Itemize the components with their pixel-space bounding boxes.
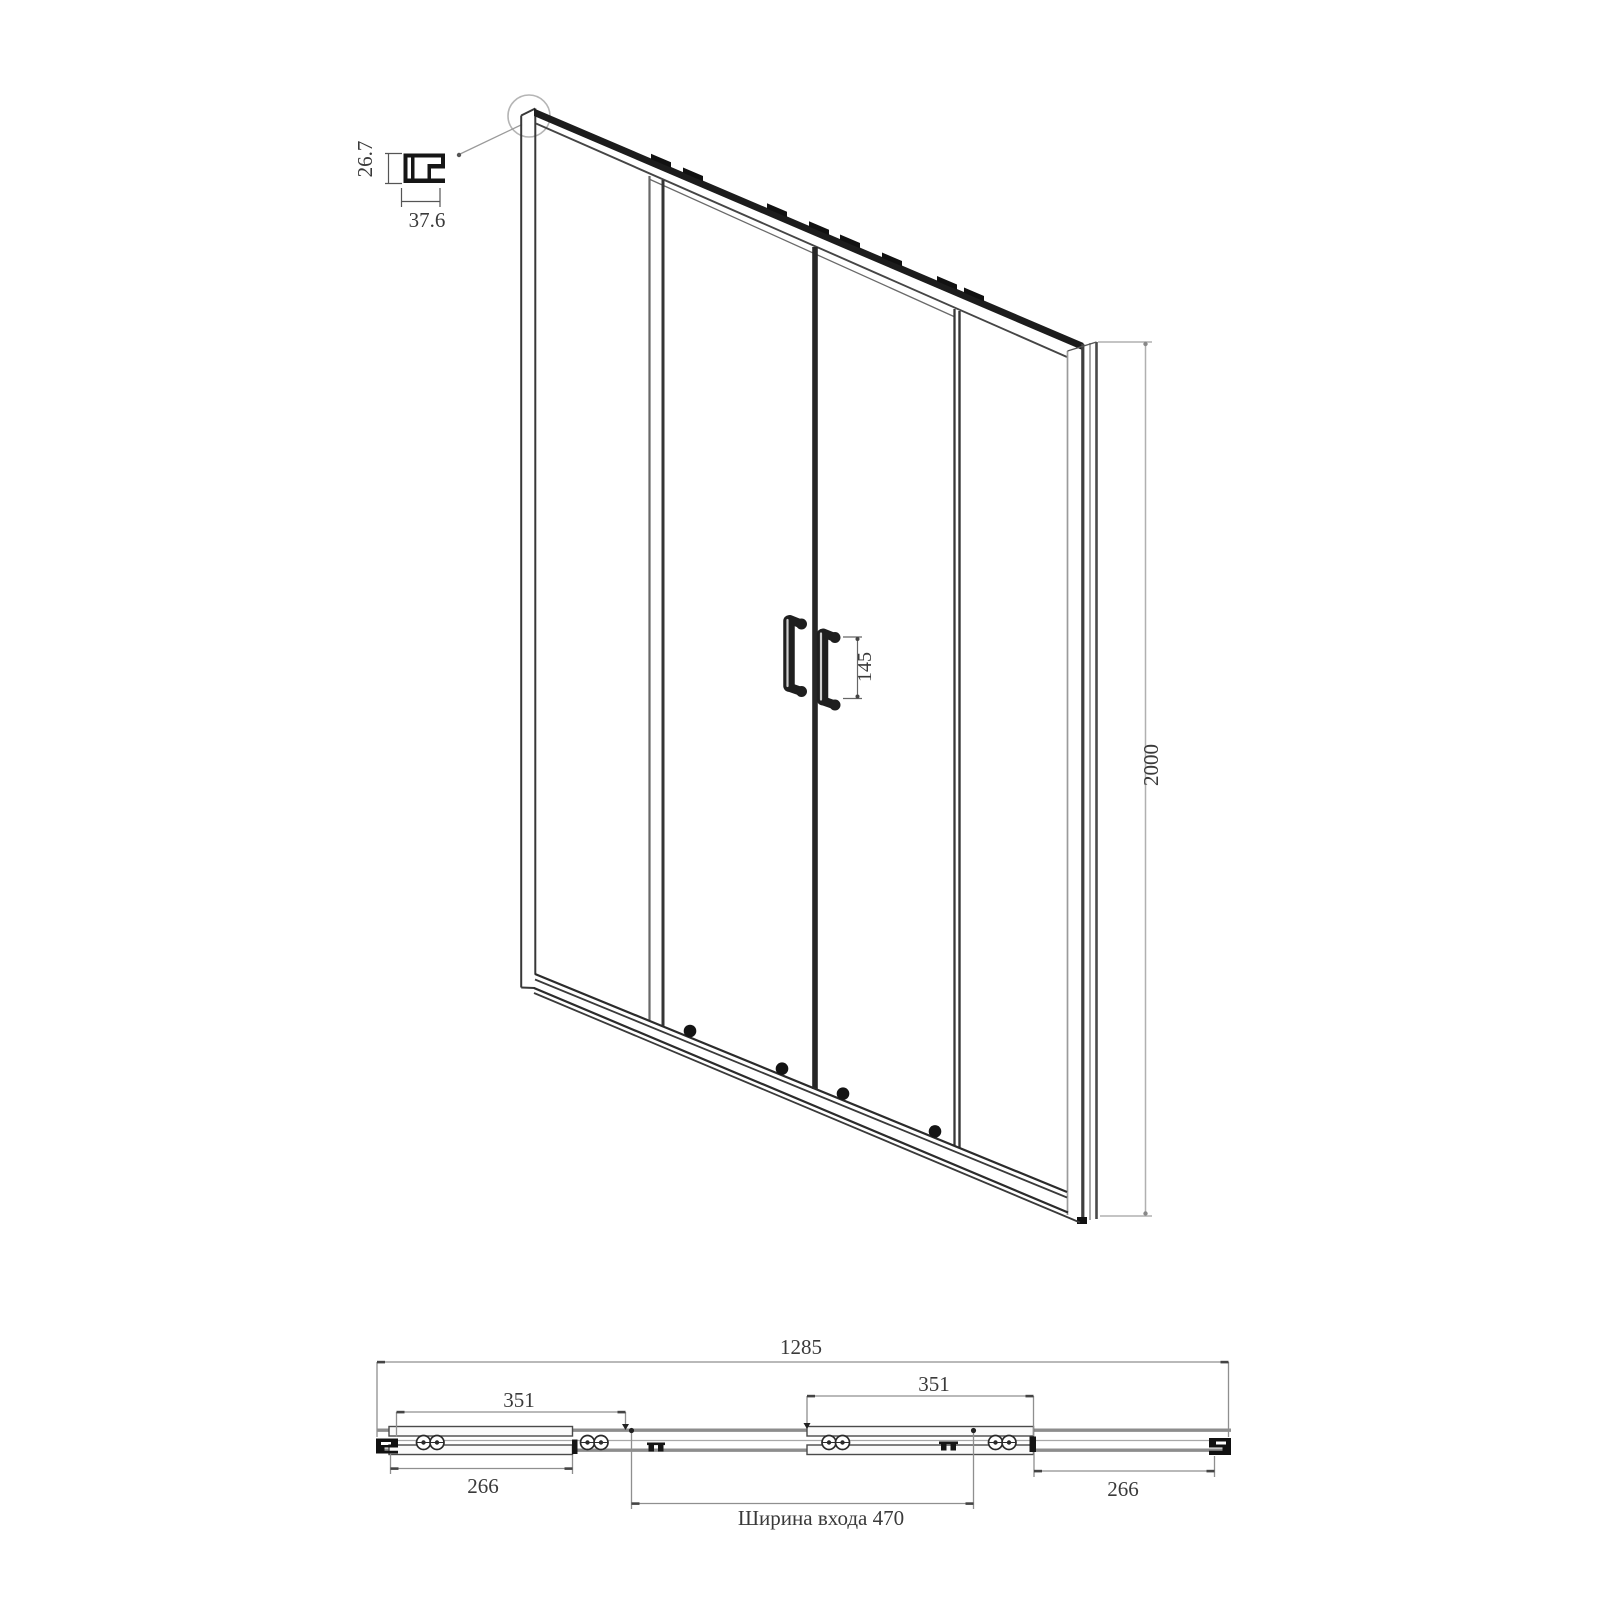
svg-text:145: 145 [854, 652, 876, 682]
svg-text:351: 351 [503, 1388, 535, 1412]
svg-text:Ширина входа 470: Ширина входа 470 [738, 1506, 904, 1530]
svg-text:351: 351 [918, 1372, 950, 1396]
svg-text:266: 266 [467, 1474, 499, 1498]
svg-text:37.6: 37.6 [409, 208, 446, 232]
svg-text:26.7: 26.7 [353, 141, 377, 178]
svg-text:2000: 2000 [1139, 744, 1163, 786]
svg-text:1285: 1285 [780, 1335, 822, 1359]
svg-text:266: 266 [1107, 1477, 1139, 1501]
